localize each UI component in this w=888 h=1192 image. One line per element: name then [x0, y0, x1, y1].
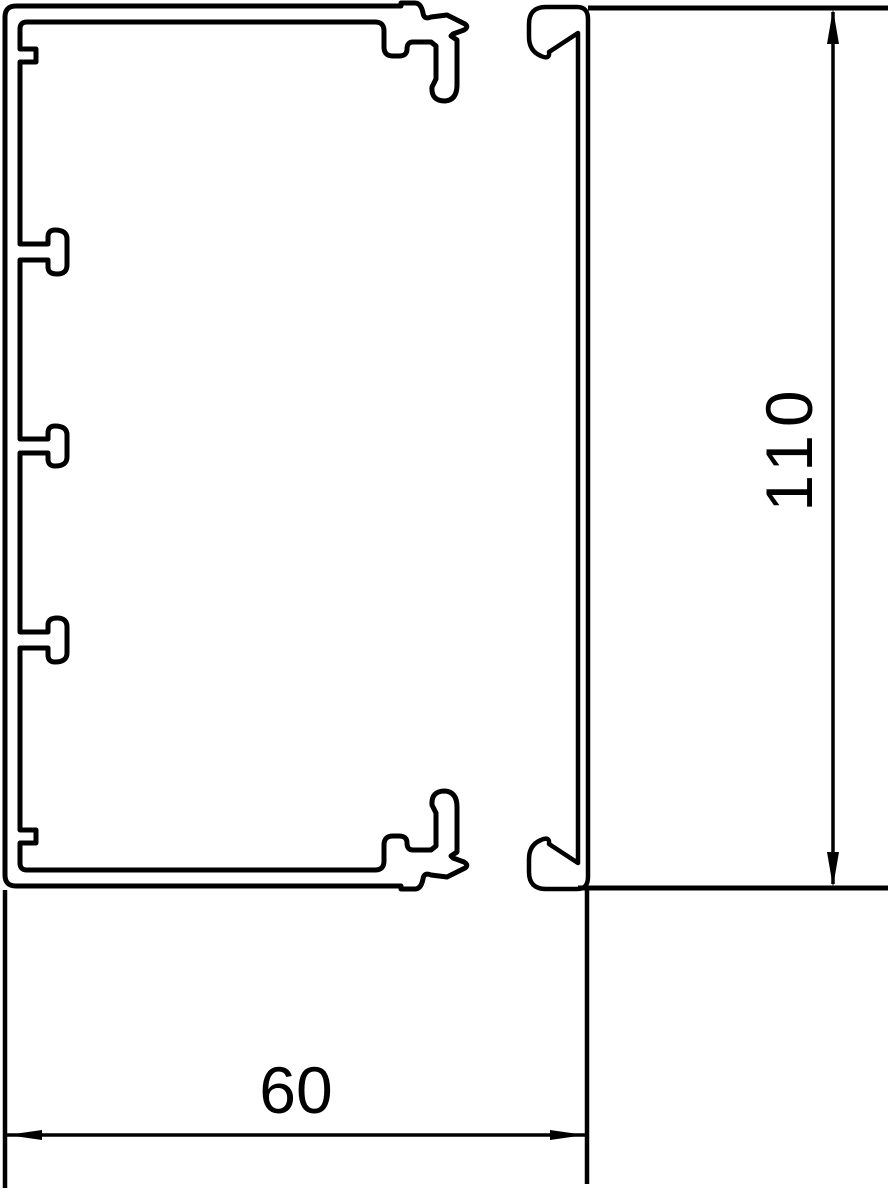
duct-body-upper-half [5, 3, 467, 446]
dimension-lines [5, 8, 888, 1188]
duct-cover-profile [529, 7, 588, 889]
height-arrow-bottom [827, 852, 839, 887]
duct-body-lower-half [5, 446, 467, 889]
duct-cover-upper-half [529, 7, 588, 448]
dimension-arrows [7, 9, 839, 1140]
duct-cross-section-drawing: 60 110 [0, 0, 888, 1192]
height-arrow-top [827, 9, 839, 44]
duct-body-profile [5, 3, 467, 889]
height-dimension-label: 110 [752, 382, 826, 511]
technical-drawing-canvas: 60 110 [0, 0, 888, 1192]
width-dimension-label: 60 [259, 1053, 332, 1127]
duct-cover-lower-half [529, 448, 588, 889]
width-arrow-left [7, 1130, 42, 1140]
width-arrow-right [550, 1130, 585, 1140]
